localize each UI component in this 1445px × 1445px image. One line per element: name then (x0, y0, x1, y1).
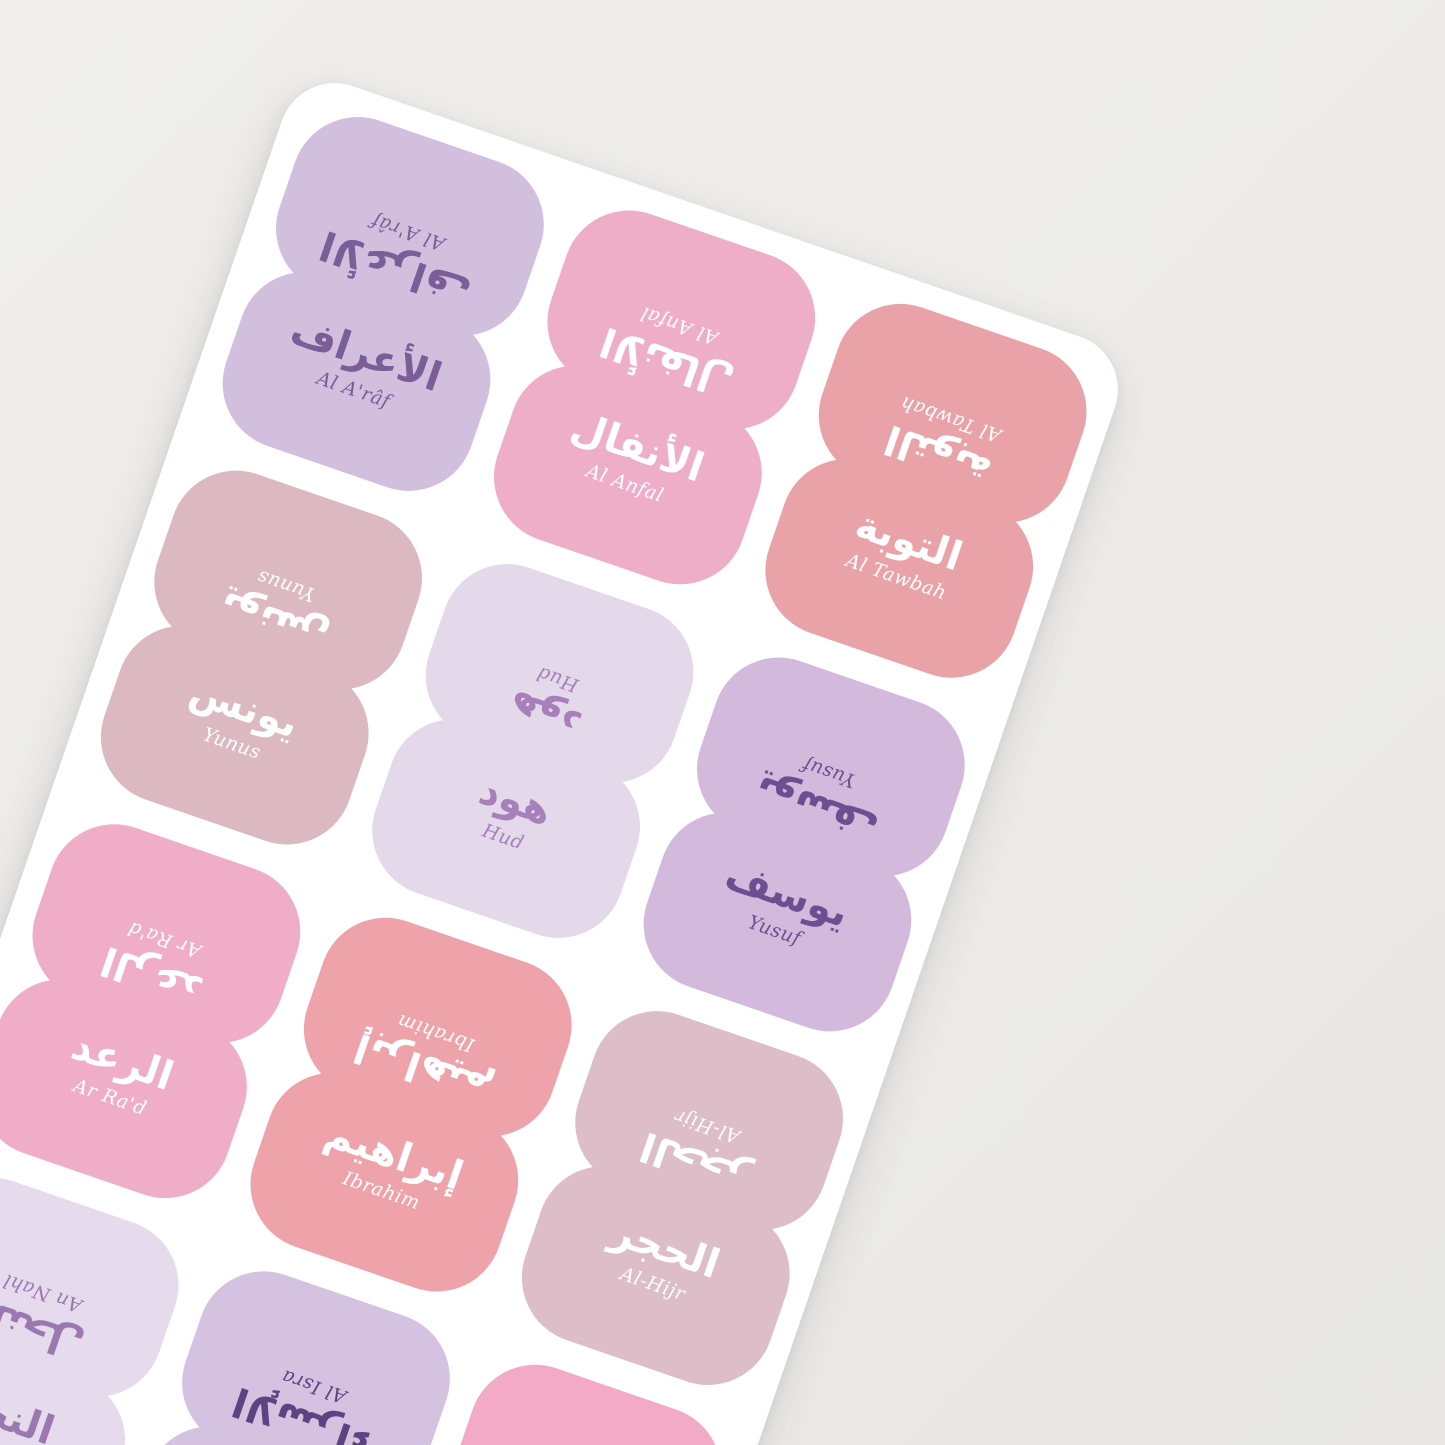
product-mockup: الأعراف Al A'râf الأعراف Al A'râf الأنفا… (0, 0, 1445, 1445)
tab-grid: الأعراف Al A'râf الأعراف Al A'râf الأنفا… (0, 99, 1104, 1445)
sticker-sheet: الأعراف Al A'râf الأعراف Al A'râf الأنفا… (0, 68, 1133, 1445)
